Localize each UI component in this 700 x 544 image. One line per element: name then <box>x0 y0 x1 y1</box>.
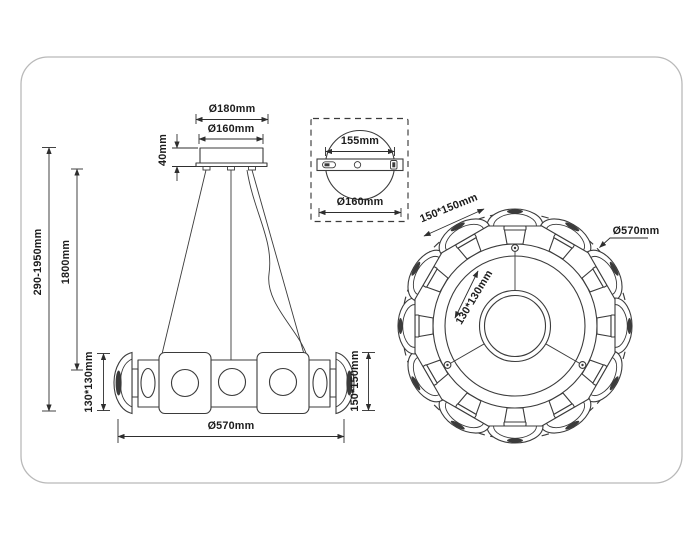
fixture-side-body <box>114 353 354 414</box>
hub-inner-circle <box>485 296 546 357</box>
dim-plate-diameter-label: Ø180mm <box>209 103 256 115</box>
bracket-slot-pin <box>325 163 330 166</box>
shade-ring <box>398 209 632 443</box>
suspension-wires <box>162 170 307 360</box>
shade-assembly <box>487 209 543 244</box>
dim-plate-diameter: Ø180mm <box>196 103 268 124</box>
dim-bracket-length-label: 155mm <box>341 135 379 147</box>
dim-bracket-length: 155mm <box>326 135 395 156</box>
dim-fixture-diameter-top-label: Ø570mm <box>613 225 660 237</box>
dim-canopy-diameter-label: Ø160mm <box>208 123 255 135</box>
dim-total-height-label: 290-1950mm <box>32 229 44 296</box>
dim-canopy-diameter: Ø160mm <box>199 123 263 144</box>
dim-plate-diameter-detail: Ø160mm <box>319 196 401 217</box>
top-view: 150*150mm Ø570mm 130*130mm <box>398 191 659 443</box>
lamp-dimension-diagram: Ø180mm Ø160mm 40mm <box>0 0 700 544</box>
dim-wire-length: 1800mm <box>60 169 83 370</box>
dim-plate-diameter-detail-label: Ø160mm <box>337 196 384 208</box>
dim-canopy-height: 40mm <box>157 134 198 181</box>
bracket-end-pin <box>392 162 395 167</box>
hub-outer-circle <box>480 291 551 362</box>
dim-canopy-height-label: 40mm <box>157 134 169 166</box>
side-view: Ø180mm Ø160mm 40mm <box>32 103 375 443</box>
dim-shade-right-label: 150*150mm <box>349 350 361 411</box>
dim-shade-left: 130*130mm <box>83 351 110 412</box>
left-dome-shade <box>114 353 132 414</box>
power-cable <box>247 170 307 356</box>
dim-shade-left-label: 130*130mm <box>83 351 95 412</box>
dim-inner-shade-size-label: 130*130mm <box>454 268 496 327</box>
dim-wire-length-label: 1800mm <box>60 240 72 284</box>
dim-inner-shade-size: 130*130mm <box>454 268 496 327</box>
dim-shade-right: 150*150mm <box>349 350 375 411</box>
dim-fixture-diameter-side: Ø570mm <box>118 419 344 443</box>
dim-fixture-diameter-side-label: Ø570mm <box>208 420 255 432</box>
ceiling-canopy <box>196 148 267 170</box>
dimension-drawing-page: Ø180mm Ø160mm 40mm <box>0 0 700 544</box>
dim-total-height: 290-1950mm <box>32 148 56 412</box>
ceiling-mount-detail: 155mm Ø160mm <box>311 119 408 222</box>
dim-fixture-diameter-top: Ø570mm <box>600 225 660 248</box>
